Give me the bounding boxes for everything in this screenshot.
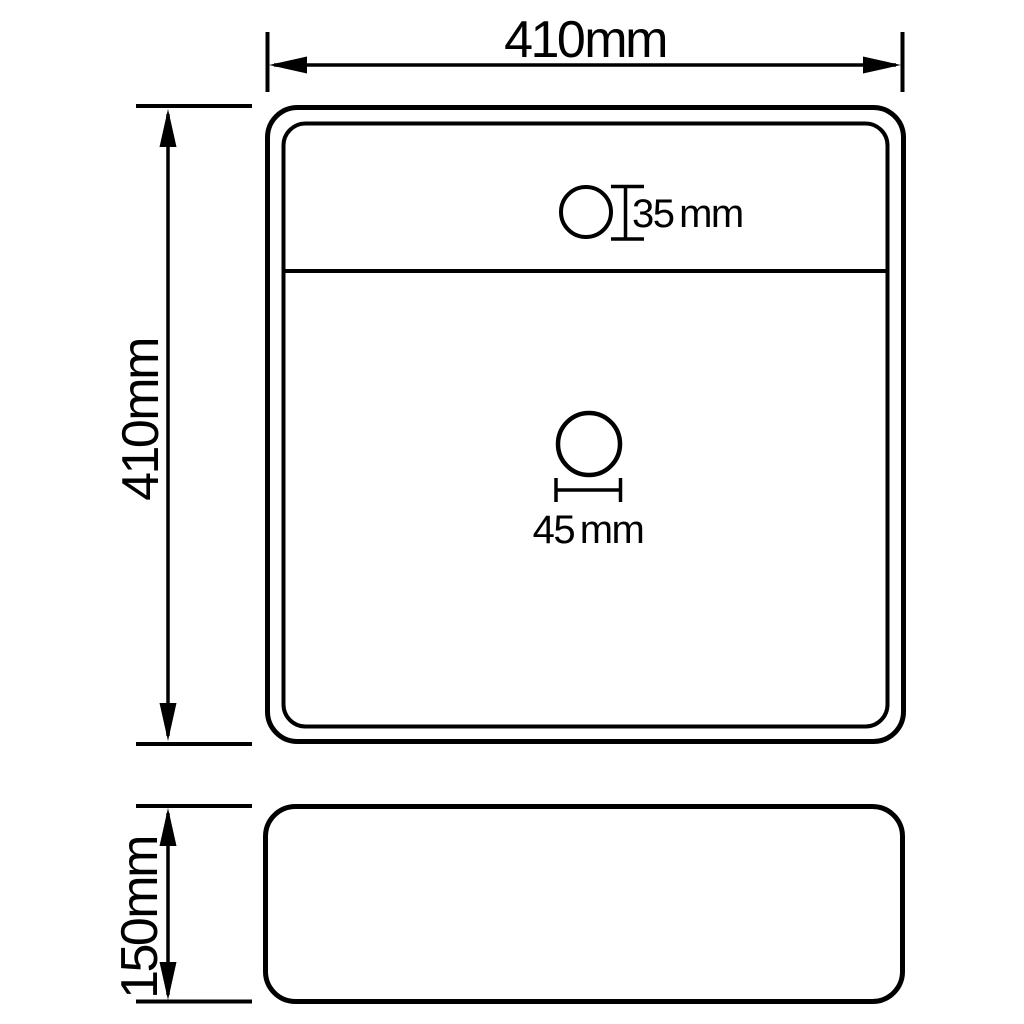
drain-hole-dimension: 45 mm	[533, 478, 644, 552]
side-height-dimension-label: 150 mm	[111, 837, 169, 999]
height-dimension-label: 410 mm	[112, 339, 170, 501]
faucet-hole	[561, 187, 611, 237]
side-view	[266, 807, 903, 1002]
side-height-dimension: 150 mm	[111, 806, 252, 1002]
top-view	[268, 108, 904, 742]
drain-hole-label: 45 mm	[533, 508, 644, 552]
drain-hole	[558, 413, 620, 475]
arrowhead-right	[863, 57, 901, 74]
width-dimension: 410 mm	[268, 11, 903, 92]
basin-dimension-diagram: 410 mm 410 mm 35 mm 45 mm	[0, 0, 1024, 1024]
arrowhead-down	[160, 703, 177, 741]
basin-side-outline	[266, 807, 903, 1002]
width-dimension-label: 410 mm	[504, 11, 666, 69]
height-dimension: 410 mm	[112, 106, 252, 744]
basin-outer-edge	[268, 108, 904, 742]
faucet-hole-label: 35 mm	[632, 192, 743, 236]
basin-inner-rim	[284, 124, 888, 727]
diagram-svg: 410 mm 410 mm 35 mm 45 mm	[0, 0, 1024, 1024]
faucet-hole-dimension: 35 mm	[611, 186, 743, 239]
arrowhead-left	[269, 57, 307, 74]
arrowhead-up	[160, 109, 177, 147]
